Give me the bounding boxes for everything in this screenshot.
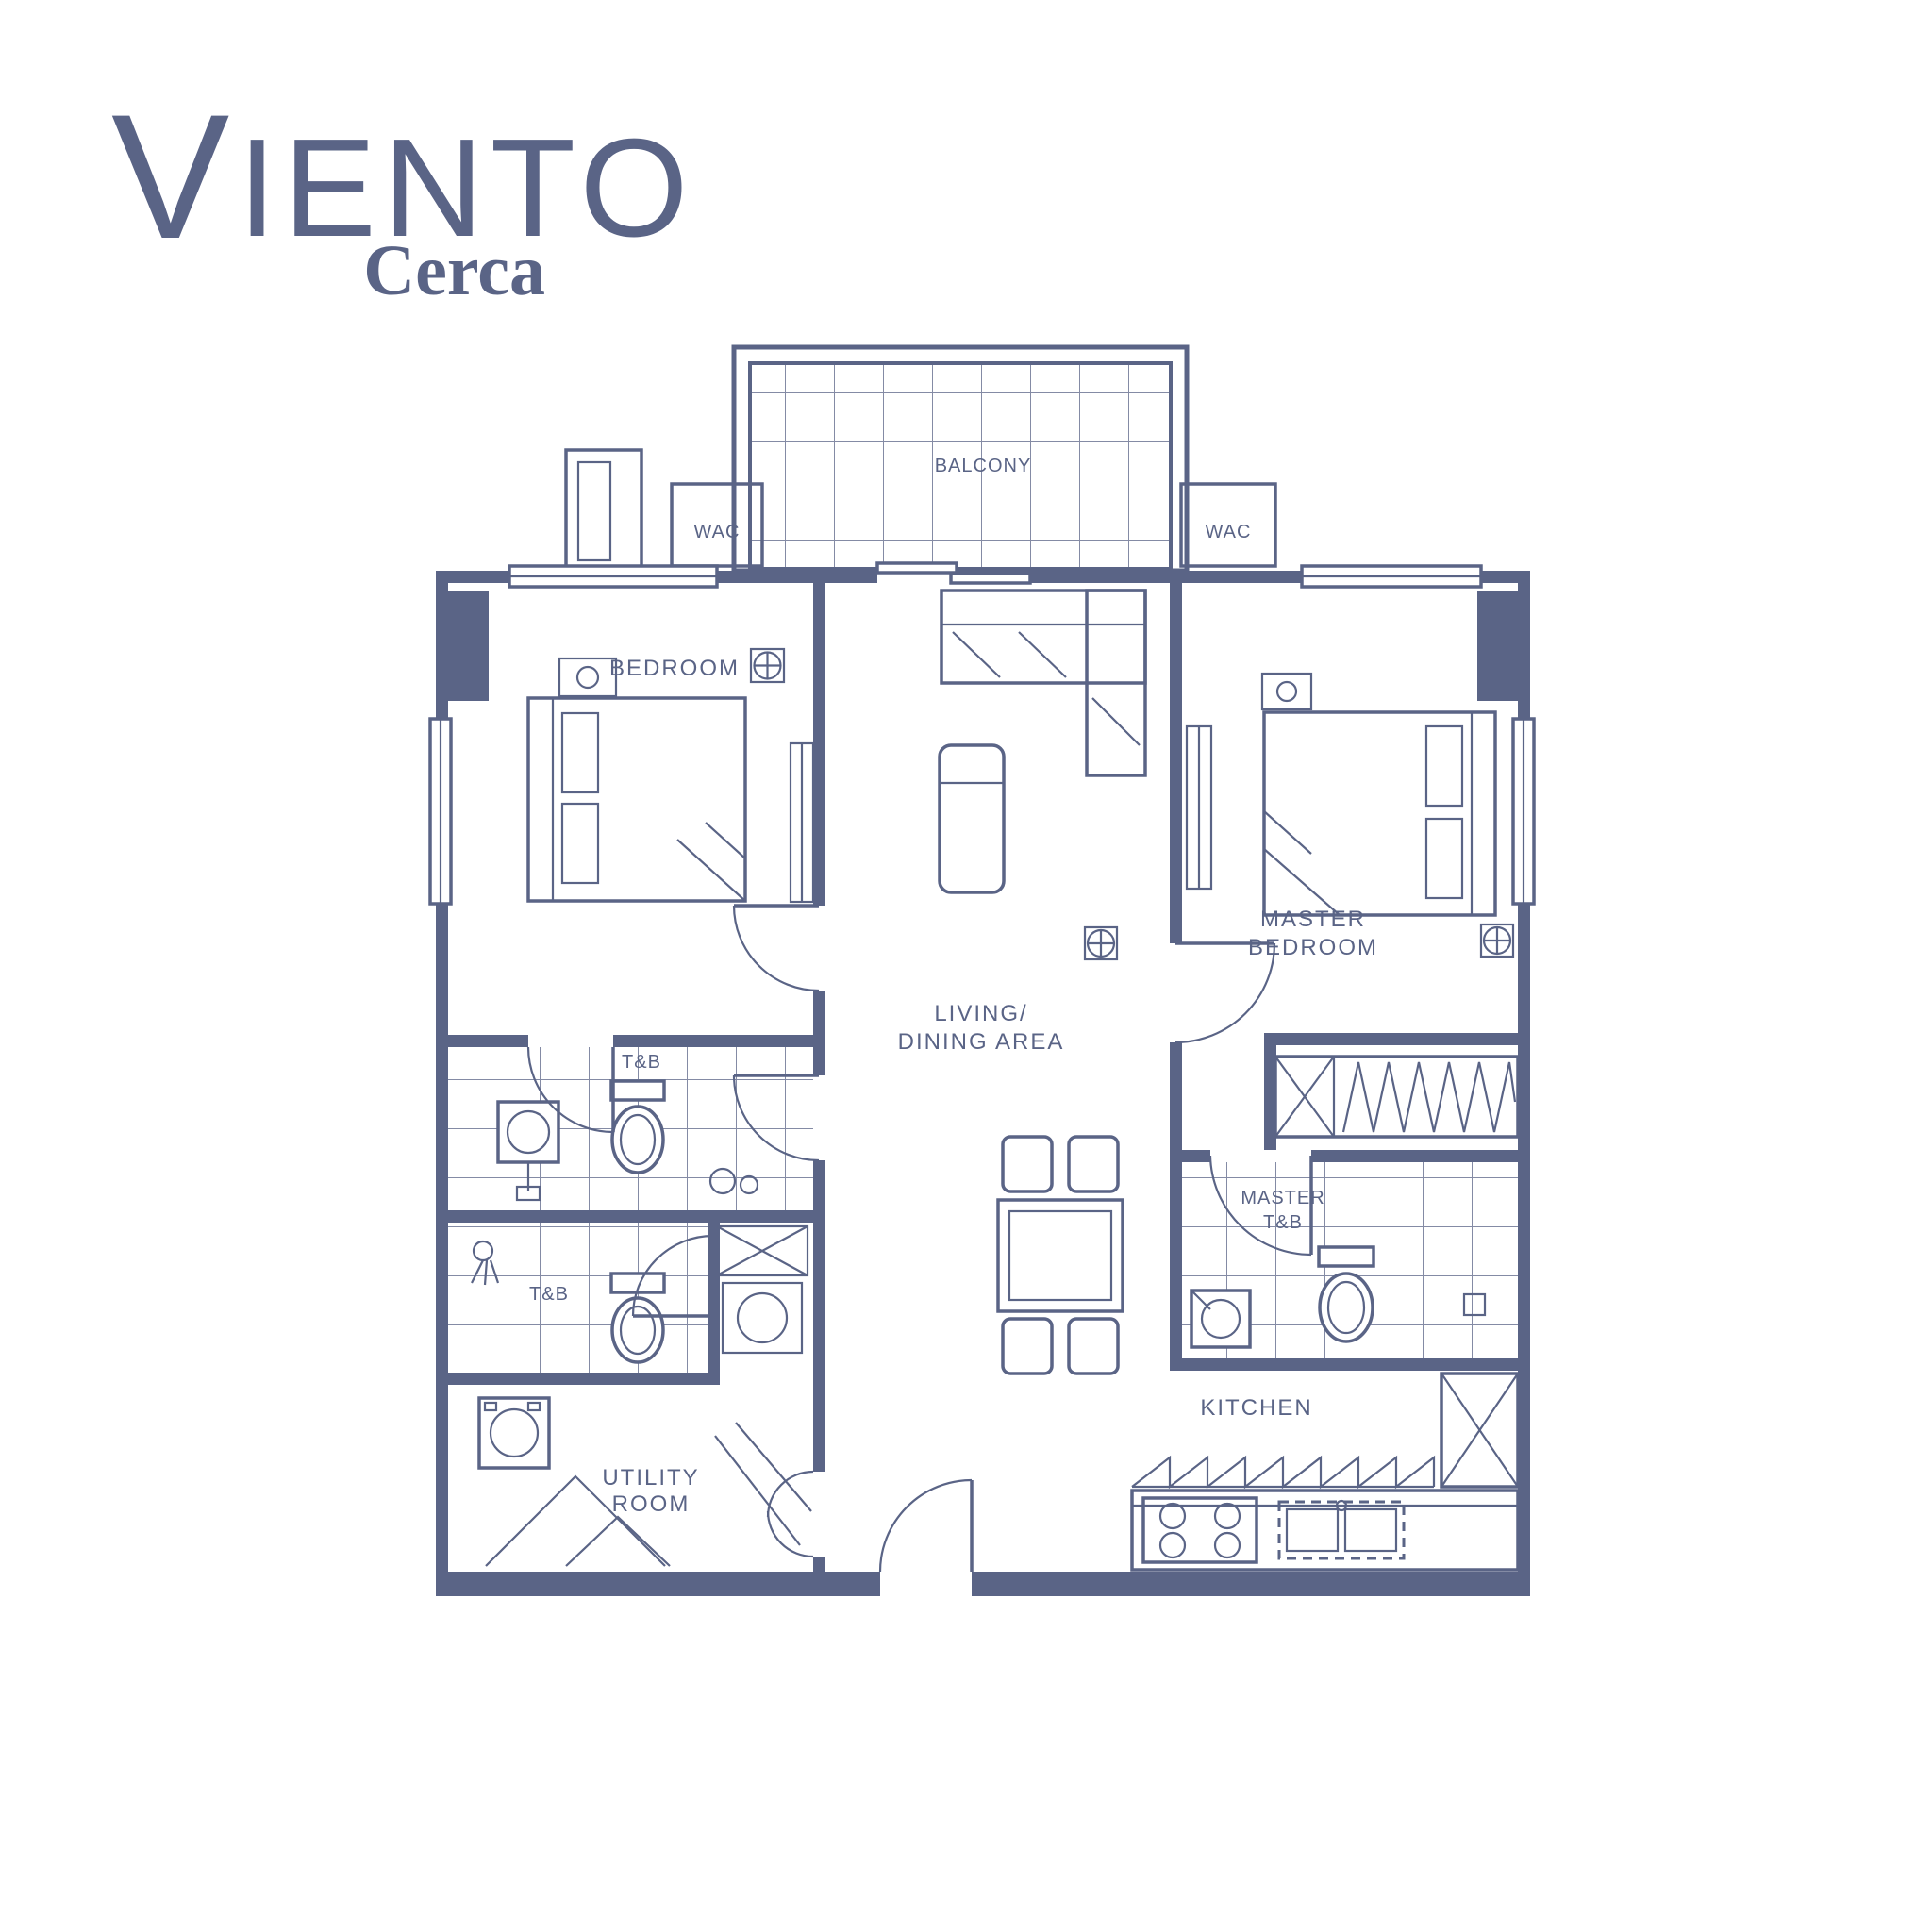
living-dining: LIVING/ DINING AREA: [880, 591, 1145, 1572]
living-label-line1: LIVING/: [934, 1001, 1027, 1026]
bedroom-door: [734, 906, 819, 991]
dining-chair: [1003, 1319, 1052, 1374]
utility-room: UTILITY ROOM: [479, 1398, 813, 1566]
common-tb: T&B: [448, 1047, 813, 1210]
refrigerator: [1441, 1374, 1518, 1487]
dining-chair: [1003, 1137, 1052, 1191]
master-bed: [1264, 712, 1495, 915]
master-wardrobe: [1275, 1057, 1518, 1137]
master-bedroom: MASTER BEDROOM: [1175, 674, 1513, 1042]
sliding-door-leaf: [877, 563, 957, 573]
nightstand: [1262, 674, 1311, 709]
window-master-top: [1302, 566, 1481, 587]
master-tb-label-line2: T&B: [1263, 1212, 1303, 1233]
kitchen: KITCHEN: [1132, 1374, 1518, 1570]
logo-subtitle: Cerca: [363, 231, 545, 310]
lounge-chair: [940, 745, 1004, 892]
sink: [1191, 1291, 1250, 1347]
sofa: [941, 591, 1145, 775]
entry-door: [880, 1480, 972, 1572]
dining-table-inner: [1009, 1211, 1111, 1300]
balcony-label: BALCONY: [935, 456, 1032, 476]
utility-label-line2: ROOM: [612, 1491, 691, 1517]
dryer: [723, 1283, 802, 1353]
window-bedroom-top: [509, 566, 717, 587]
bedroom: BEDROOM: [528, 649, 819, 991]
upper-cabinets: [1132, 1457, 1434, 1487]
dining-chair: [1069, 1137, 1118, 1191]
floorplan-drawing: V IENTO Cerca BALCONY WAC WAC: [0, 0, 1932, 1932]
bedroom-label: BEDROOM: [609, 656, 740, 681]
toilet: [1319, 1247, 1374, 1341]
dining-chair: [1069, 1319, 1118, 1374]
master-closet: [1187, 726, 1211, 889]
nightstand: [559, 658, 616, 696]
bed: [528, 698, 745, 901]
shear-wall-left: [436, 591, 489, 701]
balcony: BALCONY: [734, 347, 1187, 583]
linen-shelf: [717, 1226, 808, 1275]
living-label-line2: DINING AREA: [898, 1029, 1065, 1055]
windows: [430, 566, 1534, 904]
ledge-unit: [578, 462, 610, 560]
second-tb: T&B: [448, 1223, 713, 1373]
logo-title-initial: V: [111, 77, 229, 275]
toilet: [611, 1081, 664, 1173]
master-bedroom-label-line2: BEDROOM: [1248, 935, 1378, 960]
bedroom-closet: [791, 743, 813, 902]
wac-left-label: WAC: [694, 522, 741, 542]
master-bedroom-label-line1: MASTER: [1260, 907, 1366, 932]
sliding-door-leaf: [951, 574, 1030, 583]
stove: [1143, 1498, 1257, 1562]
dining-table: [998, 1200, 1123, 1311]
ac-ledge: [566, 450, 641, 569]
ceiling-fixture-icon: [751, 649, 784, 682]
wac-right-box: WAC: [1181, 484, 1275, 566]
window-bedroom-left: [430, 719, 451, 904]
washer: [479, 1398, 549, 1468]
wac-right-label: WAC: [1206, 522, 1252, 542]
window-master-right: [1513, 719, 1534, 904]
ceiling-fixture-icon: [1085, 927, 1117, 959]
kitchen-label: KITCHEN: [1200, 1395, 1312, 1421]
dining-set: [998, 1137, 1123, 1374]
logo: V IENTO Cerca: [111, 77, 695, 310]
second-tb-tiles: [448, 1223, 708, 1373]
ceiling-fixture-icon: [1481, 924, 1513, 957]
common-tb-label: T&B: [622, 1052, 661, 1073]
utility-label-line1: UTILITY: [602, 1465, 699, 1491]
kitchen-sink: [1279, 1501, 1404, 1558]
shear-wall-right: [1477, 591, 1530, 701]
floorplan-page: V IENTO Cerca BALCONY WAC WAC: [0, 0, 1932, 1932]
master-tb: MASTER T&B: [1182, 1156, 1518, 1358]
second-tb-label: T&B: [529, 1284, 569, 1305]
hanging-clothes: [1343, 1062, 1515, 1132]
